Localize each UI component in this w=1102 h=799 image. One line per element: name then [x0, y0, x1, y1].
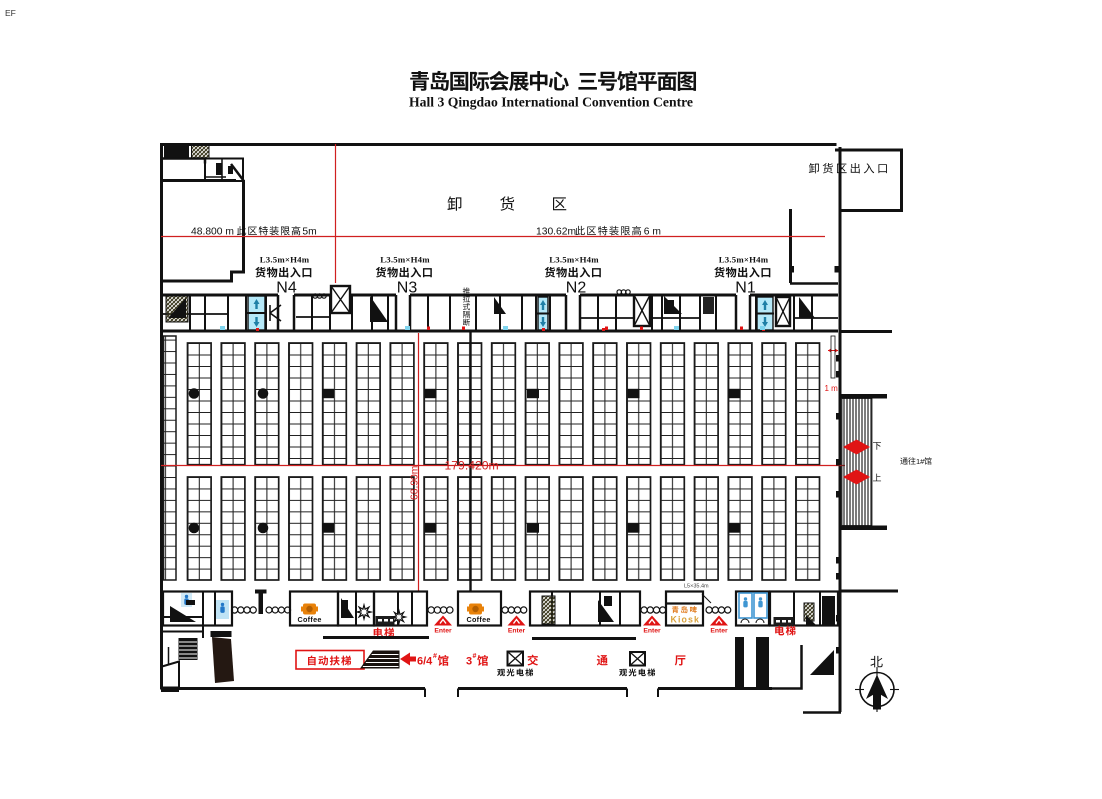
svg-text:Kiosk: Kiosk	[671, 615, 700, 625]
svg-text:1 m: 1 m	[825, 384, 839, 393]
svg-text:#: #	[473, 653, 477, 660]
svg-text:179.420m: 179.420m	[445, 459, 499, 473]
svg-text:L3.5m×H4m: L3.5m×H4m	[380, 255, 430, 265]
svg-text:L3.5m×H4m: L3.5m×H4m	[260, 255, 310, 265]
svg-text:Enter: Enter	[643, 628, 661, 635]
svg-text:Enter: Enter	[710, 628, 728, 635]
svg-text:5m: 5m	[302, 227, 316, 238]
svg-text:68.90m: 68.90m	[410, 466, 421, 500]
svg-text:EF: EF	[5, 8, 16, 18]
svg-text:L3.5m×H4m: L3.5m×H4m	[549, 255, 599, 265]
svg-text:Enter: Enter	[508, 628, 526, 635]
svg-text:130.62m: 130.62m	[536, 227, 576, 238]
svg-text:6 m: 6 m	[644, 227, 661, 238]
svg-text:L5×35.4m: L5×35.4m	[684, 584, 709, 590]
svg-text:1#: 1#	[916, 457, 925, 466]
svg-text:L3.5m×H4m: L3.5m×H4m	[719, 255, 769, 265]
svg-text:Hall 3 Qingdao International C: Hall 3 Qingdao International Convention …	[409, 95, 693, 110]
svg-text:Coffee: Coffee	[467, 615, 491, 624]
svg-text:Coffee: Coffee	[298, 615, 322, 624]
svg-text:Enter: Enter	[434, 628, 452, 635]
svg-text:48.800 m: 48.800 m	[191, 227, 234, 238]
svg-text:3: 3	[466, 656, 472, 668]
svg-text:6/4: 6/4	[417, 656, 433, 668]
svg-text:#: #	[433, 653, 437, 660]
svg-text:N4: N4	[276, 280, 297, 297]
